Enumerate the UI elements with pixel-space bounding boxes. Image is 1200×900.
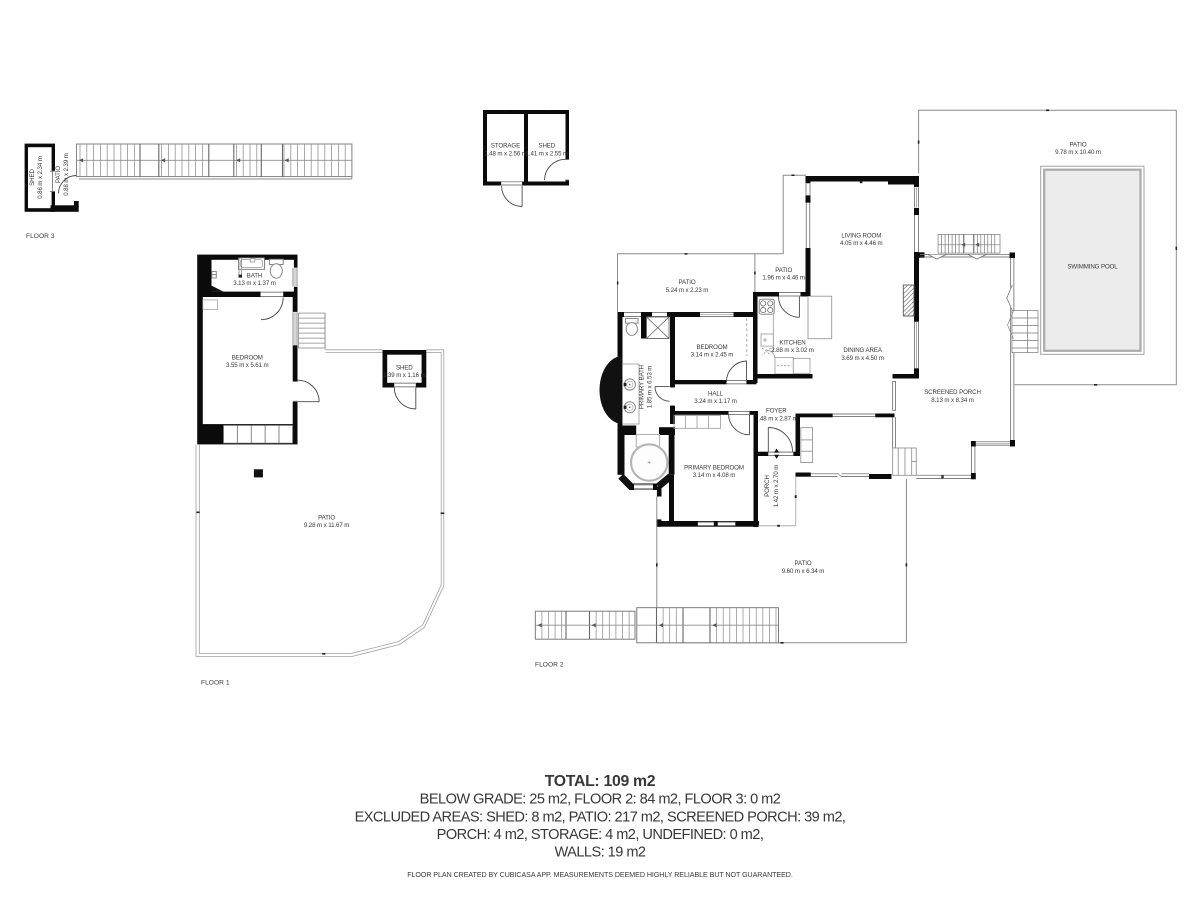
svg-text:FOYER: FOYER	[766, 408, 787, 415]
svg-text:KITCHEN: KITCHEN	[779, 339, 805, 346]
svg-text:FLOOR 2: FLOOR 2	[535, 662, 564, 669]
svg-text:PRIMARY BATH: PRIMARY BATH	[639, 365, 646, 409]
svg-text:FLOOR PLAN CREATED BY CUBICASA: FLOOR PLAN CREATED BY CUBICASA APP. MEAS…	[407, 871, 793, 879]
svg-text:0.88 m x 2.39 m: 0.88 m x 2.39 m	[63, 153, 70, 196]
svg-text:9.60 m x 6.34 m: 9.60 m x 6.34 m	[782, 568, 825, 575]
svg-text:PATIO: PATIO	[1069, 141, 1086, 148]
svg-text:3.69 m x 4.50 m: 3.69 m x 4.50 m	[841, 355, 884, 362]
svg-text:PATIO: PATIO	[794, 560, 811, 567]
svg-text:PATIO: PATIO	[678, 279, 695, 286]
svg-text:BELOW GRADE: 25 m2, FLOOR 2: 8: BELOW GRADE: 25 m2, FLOOR 2: 84 m2, FLOO…	[420, 792, 781, 808]
svg-text:DINING AREA: DINING AREA	[843, 347, 882, 354]
svg-text:1.48 m x 2.87 m: 1.48 m x 2.87 m	[755, 415, 798, 422]
svg-text:3.24 m x 1.17 m: 3.24 m x 1.17 m	[694, 398, 737, 405]
svg-text:EXCLUDED AREAS: SHED: 8 m2, PA: EXCLUDED AREAS: SHED: 8 m2, PATIO: 217 m…	[355, 810, 846, 826]
svg-text:SHED: SHED	[538, 143, 555, 150]
svg-text:LIVING ROOM: LIVING ROOM	[841, 233, 881, 240]
svg-text:8.13 m x 8.34 m: 8.13 m x 8.34 m	[931, 397, 974, 404]
svg-text:FLOOR 1: FLOOR 1	[201, 680, 230, 687]
svg-text:PRIMARY BEDROOM: PRIMARY BEDROOM	[684, 464, 744, 471]
svg-text:3.13 m x 1.37 m: 3.13 m x 1.37 m	[233, 280, 276, 287]
svg-text:SWIMMING POOL: SWIMMING POOL	[1067, 264, 1118, 271]
svg-text:0.86 m x 2.34 m: 0.86 m x 2.34 m	[37, 156, 44, 199]
svg-text:1.41 m x 2.55 m: 1.41 m x 2.55 m	[526, 151, 569, 158]
svg-text:9.28 m x 11.67 m: 9.28 m x 11.67 m	[304, 522, 349, 529]
svg-text:PATIO: PATIO	[775, 267, 792, 274]
svg-text:PORCH: 4 m2, STORAGE: 4 m2, UN: PORCH: 4 m2, STORAGE: 4 m2, UNDEFINED: 0…	[437, 827, 764, 843]
svg-text:TOTAL: 109 m2: TOTAL: 109 m2	[545, 773, 656, 790]
svg-text:WALLS: 19 m2: WALLS: 19 m2	[554, 845, 645, 861]
svg-text:4.05 m x 4.46 m: 4.05 m x 4.46 m	[840, 240, 883, 247]
svg-text:3.55 m x 5.61 m: 3.55 m x 5.61 m	[226, 362, 269, 369]
svg-text:1.39 m x 1.16 m: 1.39 m x 1.16 m	[383, 372, 426, 379]
svg-text:PATIO: PATIO	[318, 514, 335, 521]
svg-text:FLOOR 3: FLOOR 3	[26, 233, 55, 240]
svg-text:3.14 m x 4.08 m: 3.14 m x 4.08 m	[693, 472, 736, 479]
svg-text:1.96 m x 4.46 m: 1.96 m x 4.46 m	[762, 274, 805, 281]
svg-text:SHED: SHED	[29, 169, 36, 186]
svg-text:2.88 m x 3.02 m: 2.88 m x 3.02 m	[771, 347, 814, 354]
svg-text:SHED: SHED	[396, 364, 413, 371]
svg-text:1.85 m x 6.53 m: 1.85 m x 6.53 m	[647, 366, 654, 409]
svg-text:9.78 m x 10.40 m: 9.78 m x 10.40 m	[1055, 149, 1101, 156]
svg-text:BEDROOM: BEDROOM	[696, 344, 727, 351]
svg-text:BEDROOM: BEDROOM	[232, 355, 263, 362]
svg-text:STORAGE: STORAGE	[491, 143, 520, 150]
svg-text:1.48 m x 2.56 m: 1.48 m x 2.56 m	[484, 151, 527, 158]
svg-text:SCREENED PORCH: SCREENED PORCH	[924, 389, 981, 396]
svg-text:3.14 m x 2.45 m: 3.14 m x 2.45 m	[691, 351, 734, 358]
svg-text:HALL: HALL	[708, 390, 724, 397]
svg-text:BATH: BATH	[247, 273, 263, 280]
svg-text:PORCH: PORCH	[764, 475, 771, 497]
svg-text:5.24 m x 2.23 m: 5.24 m x 2.23 m	[666, 287, 709, 294]
svg-text:PATIO: PATIO	[55, 166, 62, 183]
svg-text:1.42 m x 2.70 m: 1.42 m x 2.70 m	[773, 465, 780, 508]
